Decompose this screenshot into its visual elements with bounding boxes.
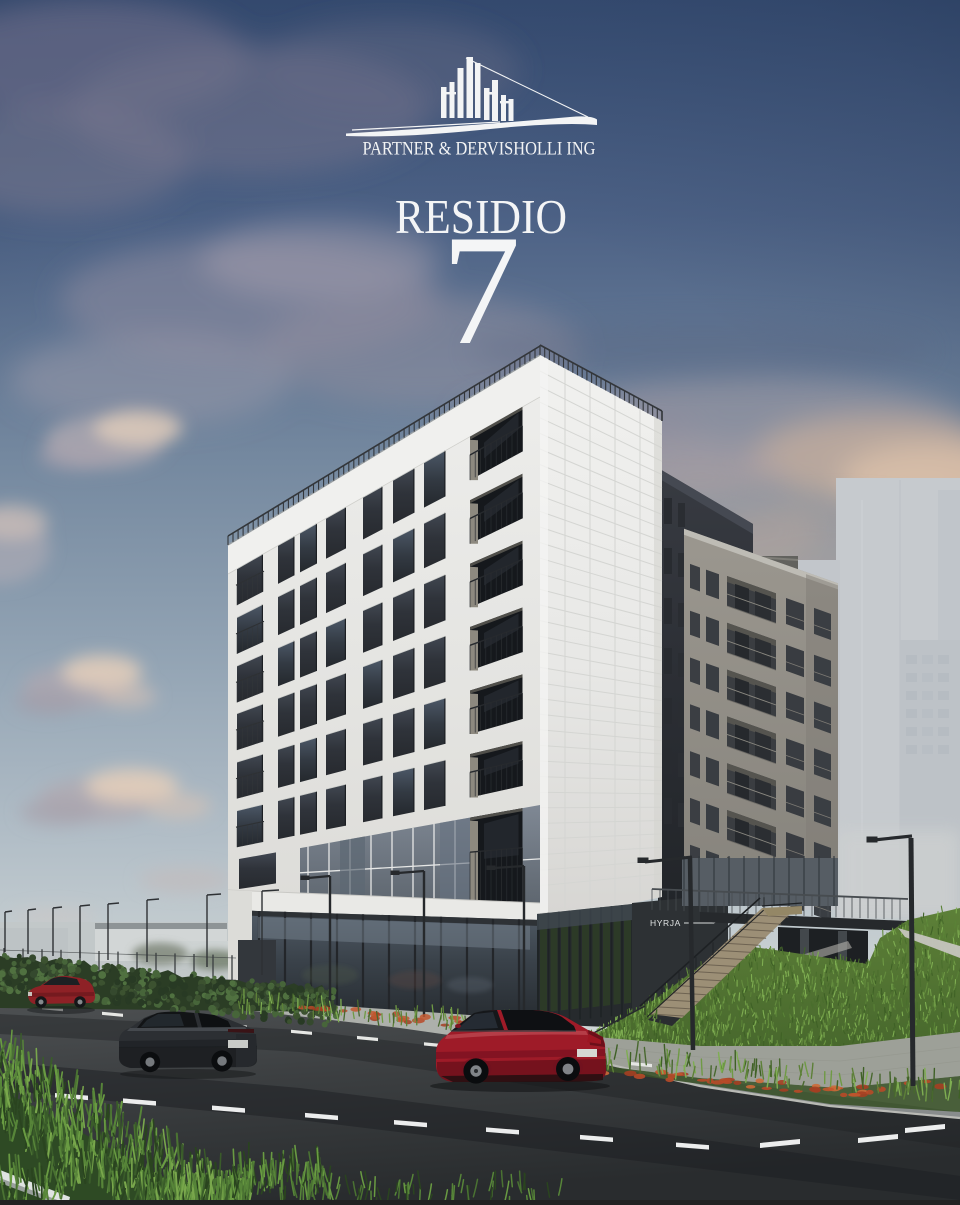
svg-text:PARTNER & DERVISHOLLI ING: PARTNER & DERVISHOLLI ING <box>363 140 596 160</box>
svg-text:HYRJA: HYRJA <box>650 918 681 928</box>
svg-text:7: 7 <box>442 203 521 378</box>
